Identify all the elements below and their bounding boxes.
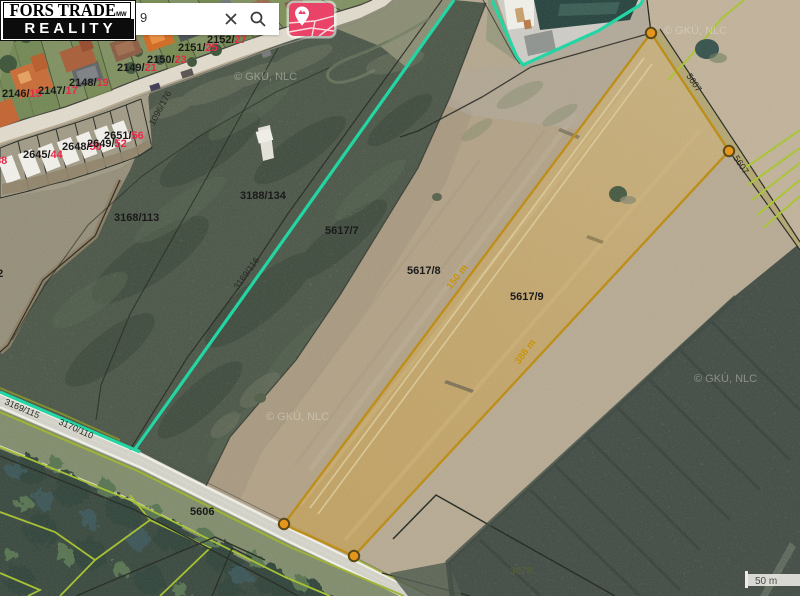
svg-text:5617/9: 5617/9 [510, 291, 544, 303]
svg-text:© GKÚ, NLC: © GKÚ, NLC [664, 24, 727, 37]
svg-text:5617/8: 5617/8 [407, 265, 441, 277]
svg-text:02: 02 [0, 268, 3, 280]
svg-text:50 m: 50 m [755, 576, 777, 587]
svg-text:5617/7: 5617/7 [325, 225, 359, 237]
svg-text:5606: 5606 [190, 506, 214, 518]
svg-text:3188/134: 3188/134 [240, 190, 287, 202]
svg-text:2150/23: 2150/23 [147, 54, 187, 66]
svg-text:© GKÚ, NLC: © GKÚ, NLC [694, 372, 757, 385]
svg-text:2146/15: 2146/15 [2, 88, 42, 100]
svg-text:2148/19: 2148/19 [69, 77, 109, 89]
svg-text:3168/113: 3168/113 [114, 212, 159, 224]
svg-text:2645/44: 2645/44 [23, 149, 64, 161]
svg-text:/38: /38 [0, 155, 7, 167]
svg-text:© GKÚ, NLC: © GKÚ, NLC [234, 70, 297, 83]
svg-text:2152/27: 2152/27 [207, 34, 247, 46]
svg-text:© GKÚ, NLC: © GKÚ, NLC [266, 410, 329, 423]
svg-text:2651/56: 2651/56 [104, 130, 144, 142]
svg-text:3078: 3078 [510, 566, 533, 577]
